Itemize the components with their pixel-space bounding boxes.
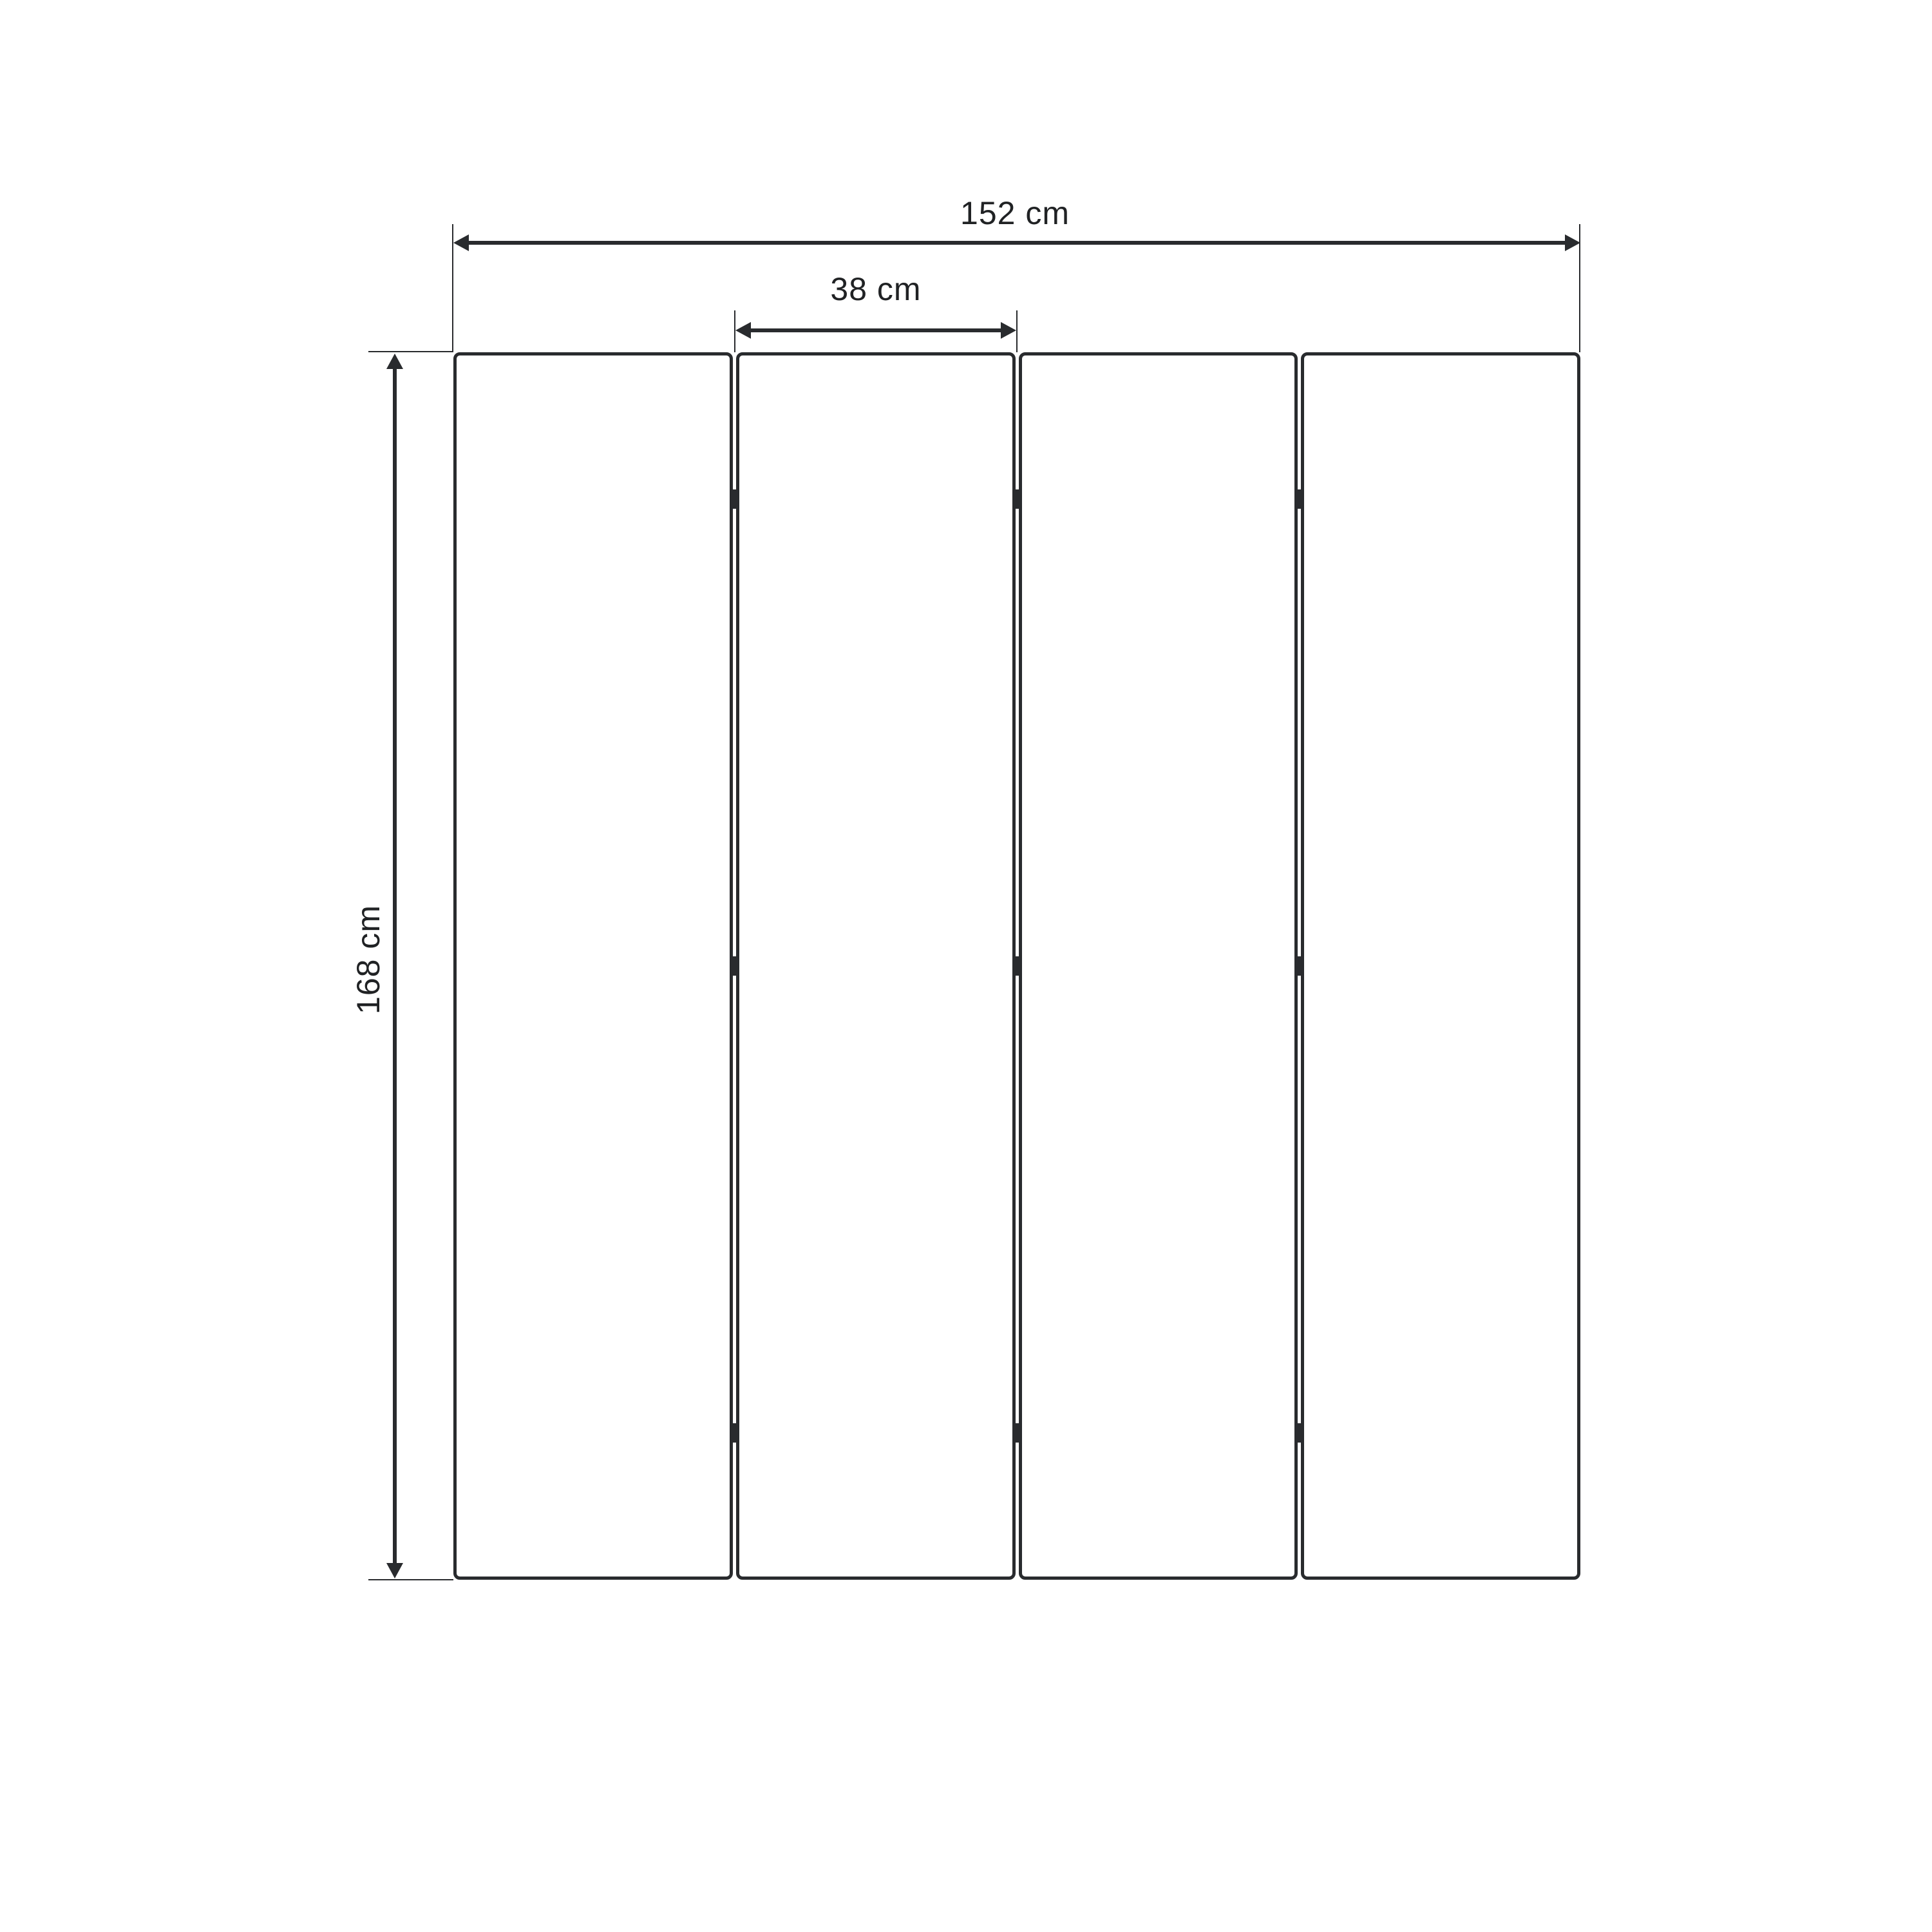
- panel-3: [1019, 352, 1298, 1580]
- arrowhead-right-icon: [1001, 322, 1016, 339]
- dimension-line-height: [386, 354, 404, 1578]
- dimension-shaft: [751, 328, 1001, 332]
- dimension-shaft: [393, 369, 397, 1563]
- hinge-icon: [1012, 956, 1021, 976]
- technical-drawing: 152 cm 38 cm 168 cm: [0, 0, 1932, 1932]
- panel-group: [453, 352, 1580, 1580]
- panel-4: [1301, 352, 1580, 1580]
- dimension-label-panel-width: 38 cm: [830, 270, 921, 308]
- hinge-icon: [1012, 1423, 1021, 1443]
- hinge-icon: [1295, 489, 1304, 509]
- dimension-label-height: 168 cm: [350, 905, 387, 1014]
- arrowhead-left-icon: [735, 322, 751, 339]
- hinge-icon: [1295, 1423, 1304, 1443]
- arrowhead-up-icon: [386, 354, 403, 369]
- dimension-line-total-width: [453, 234, 1580, 252]
- extension-line-panel-width-right: [1016, 310, 1018, 352]
- hinge-icon: [730, 956, 739, 976]
- arrowhead-down-icon: [386, 1563, 403, 1578]
- dimension-line-panel-width: [735, 321, 1016, 339]
- arrowhead-right-icon: [1565, 234, 1580, 251]
- panel-1: [453, 352, 733, 1580]
- hinge-icon: [1012, 489, 1021, 509]
- dimension-label-total-width: 152 cm: [960, 194, 1070, 232]
- hinge-icon: [730, 489, 739, 509]
- arrowhead-left-icon: [453, 234, 469, 251]
- extension-line-height-top: [368, 351, 453, 352]
- panel-2: [736, 352, 1016, 1580]
- dimension-shaft: [469, 241, 1565, 245]
- hinge-icon: [730, 1423, 739, 1443]
- extension-line-height-bottom: [368, 1579, 453, 1580]
- hinge-icon: [1295, 956, 1304, 976]
